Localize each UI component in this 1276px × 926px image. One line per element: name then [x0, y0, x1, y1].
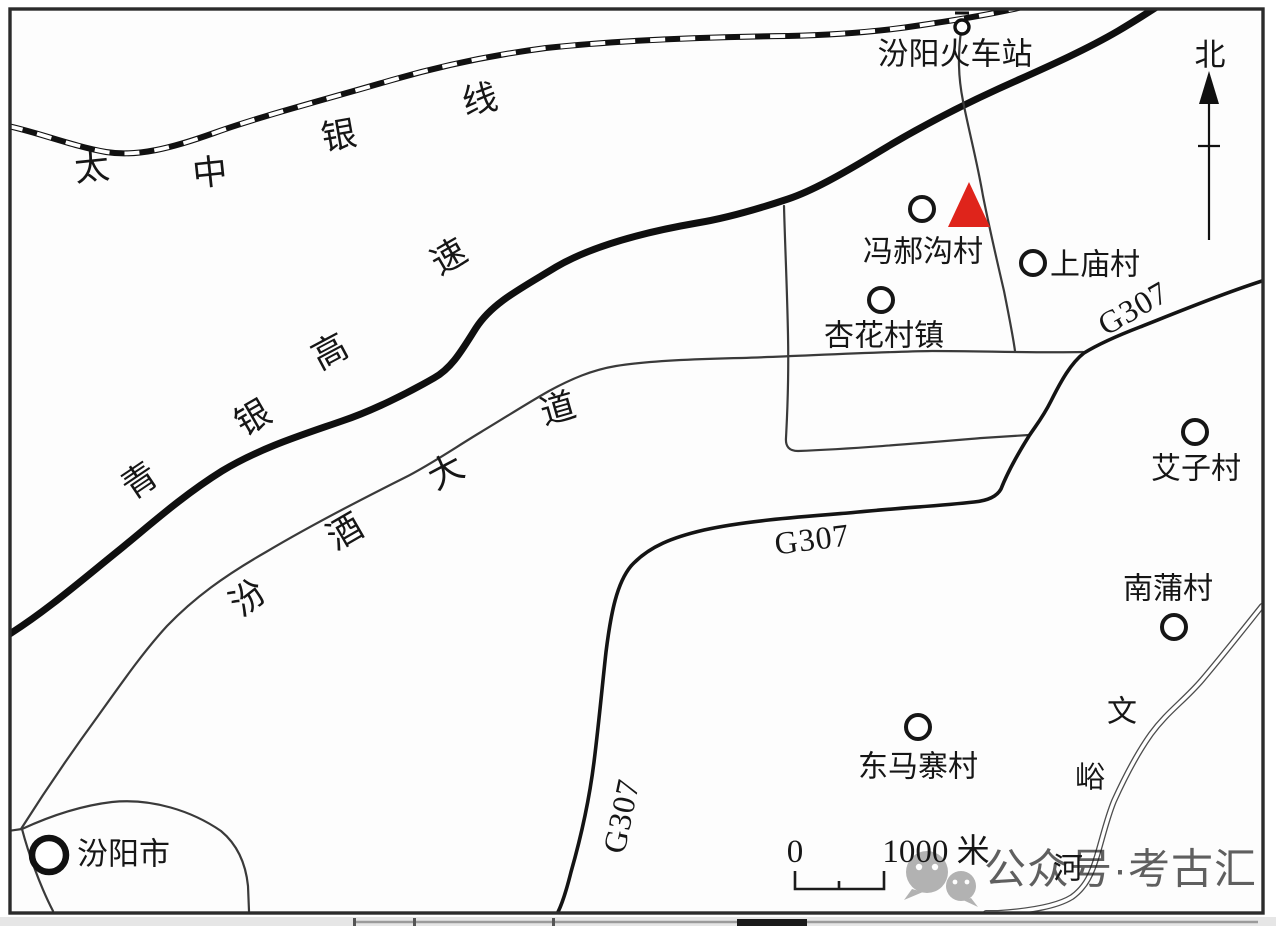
- village-marker-fenghaogou: [910, 197, 934, 221]
- river-char-3: 河: [1053, 853, 1083, 886]
- scale-zero-label: 0: [787, 834, 804, 870]
- station-label: 汾阳火车站: [878, 37, 1033, 72]
- bottom-strip-tick-3: [552, 918, 555, 926]
- city-fenyang: 汾阳市: [32, 837, 170, 873]
- village-marker-dongmazhai: [906, 715, 930, 739]
- bottom-cropped-strip: [0, 917, 1276, 926]
- station-symbol-icon: [955, 20, 969, 34]
- village-label-nanpu: 南蒲村: [1123, 573, 1213, 606]
- scale-distance-label: 1000 米: [882, 833, 989, 870]
- city-label-fenyang: 汾阳市: [77, 837, 170, 872]
- city-marker-fenyang: [32, 838, 66, 872]
- town-marker-xinghuacun: [869, 288, 893, 312]
- river-char-1: 文: [1107, 696, 1137, 729]
- railway-char-3: 银: [318, 114, 359, 158]
- village-label-fenghaogou: 冯郝沟村: [863, 236, 983, 269]
- village-marker-nanpu: [1162, 615, 1186, 639]
- railway-char-2: 中: [191, 152, 230, 194]
- river-char-2: 峪: [1075, 762, 1105, 795]
- bottom-strip-black-box: [737, 919, 807, 926]
- town-label-xinghuacun: 杏花村镇: [824, 320, 944, 353]
- village-marker-aizi: [1183, 420, 1207, 444]
- village-label-aizi: 艾子村: [1151, 453, 1241, 486]
- watermark-text: 公众号·考古汇: [984, 846, 1257, 893]
- map-figure: 公众号·考古汇 太 中 银 线 青 银 高 速 汾 酒 大 道 G307 G30…: [0, 0, 1276, 926]
- bottom-strip-tick-2: [413, 918, 416, 926]
- bottom-strip-tick-1: [353, 918, 356, 926]
- north-label: 北: [1195, 38, 1226, 73]
- site-location-map: 公众号·考古汇 太 中 银 线 青 银 高 速 汾 酒 大 道 G307 G30…: [0, 0, 1276, 926]
- village-label-dongmazhai: 东马寨村: [858, 751, 978, 784]
- village-label-shangmiao: 上庙村: [1050, 249, 1140, 282]
- village-marker-shangmiao: [1021, 251, 1045, 275]
- railway-char-1: 太: [73, 147, 112, 189]
